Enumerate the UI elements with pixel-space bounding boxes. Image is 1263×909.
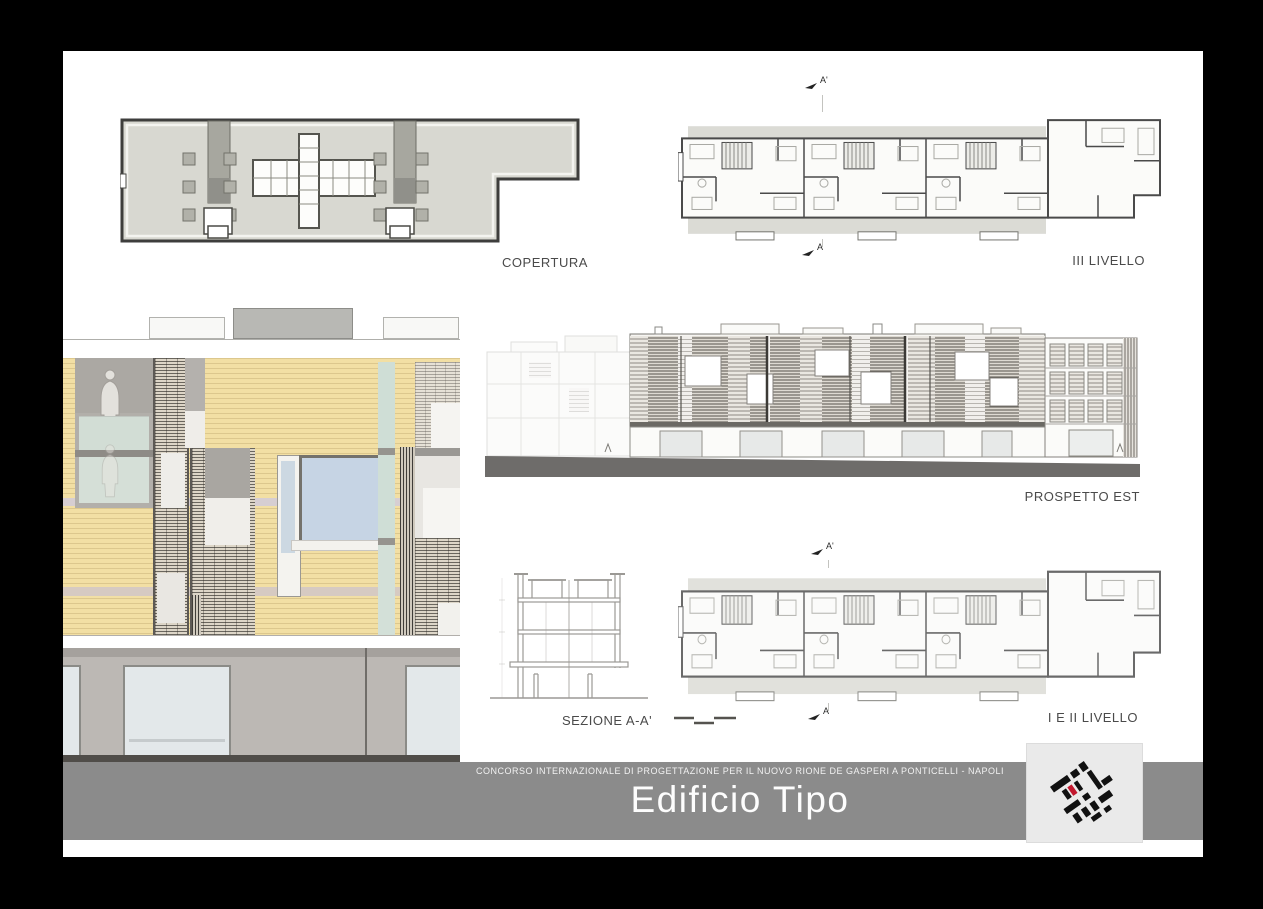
- ground-window: [405, 665, 460, 759]
- first-second-level-plan-drawing: [678, 563, 1162, 705]
- wood-facade: [63, 358, 460, 635]
- glass-strip: [378, 362, 395, 448]
- section-marker-bottom: A: [808, 711, 829, 721]
- section-arrow-icon: [802, 247, 815, 257]
- roof-box: [233, 308, 353, 339]
- section-cut-line: [822, 95, 823, 112]
- section-arrow-icon: [805, 80, 818, 90]
- section-drawing: [488, 558, 650, 712]
- balcony-bay: [75, 358, 153, 508]
- ground-floor: [63, 648, 460, 755]
- louver-column: [400, 447, 415, 635]
- board-title: Edificio Tipo: [440, 779, 1040, 821]
- presentation-board: COPERTURA A' A III LIVELLO: [0, 0, 1263, 909]
- roof-box: [149, 317, 225, 339]
- glass-strip: [378, 545, 395, 635]
- ground-line: [63, 755, 460, 762]
- third-level-label: III LIVELLO: [945, 253, 1145, 268]
- third-level-plan-drawing: [678, 112, 1162, 244]
- section-label: SEZIONE A-A': [532, 713, 682, 728]
- glass-strip: [378, 455, 395, 538]
- large-window: [299, 455, 383, 544]
- section-marker-bottom: A: [802, 247, 823, 257]
- section-marker-top: A': [811, 546, 834, 556]
- first-second-level-label: I E II LIVELLO: [938, 710, 1138, 725]
- person-silhouette: [97, 442, 123, 498]
- east-elevation-drawing: [485, 322, 1140, 477]
- east-elevation-label: PROSPETTO EST: [940, 489, 1140, 504]
- window-slot: [277, 455, 301, 597]
- roof-box: [383, 317, 459, 339]
- scale-bar: [672, 715, 738, 727]
- masterplan-logo: [1046, 754, 1124, 832]
- window-sill: [291, 540, 387, 551]
- section-arrow-icon: [811, 546, 824, 556]
- ground-window: [123, 665, 231, 759]
- copertura-label: COPERTURA: [445, 255, 645, 270]
- logo-panel: [1026, 743, 1143, 843]
- board-page: COPERTURA A' A III LIVELLO: [63, 51, 1203, 857]
- ground-window: [63, 665, 81, 759]
- section-marker-top: A': [805, 80, 828, 90]
- roof-slab-line: [63, 339, 460, 340]
- roof-plan-drawing: [120, 118, 580, 243]
- section-arrow-icon: [808, 711, 821, 721]
- louver-strip: [153, 358, 189, 635]
- footer-text: CONCORSO INTERNAZIONALE DI PROGETTAZIONE…: [440, 766, 1040, 821]
- competition-line: CONCORSO INTERNAZIONALE DI PROGETTAZIONE…: [440, 766, 1040, 776]
- facade-detail-elevation: [63, 303, 460, 762]
